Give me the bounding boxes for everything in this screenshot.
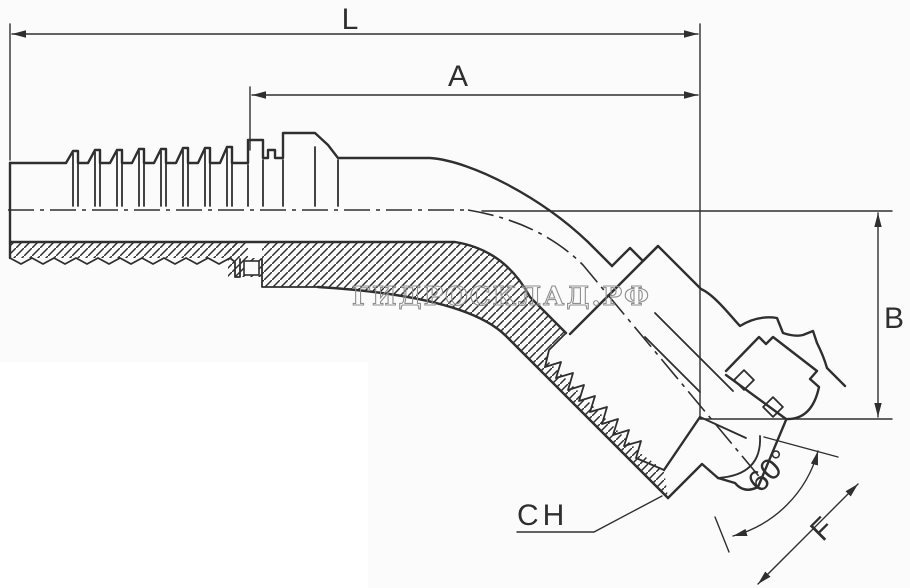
dim-label-B: B xyxy=(884,302,904,335)
fitting-technical-drawing: L A B 60° F CH ГИДРОСКЛАД.РФ xyxy=(0,0,910,588)
dim-line-F xyxy=(758,484,858,584)
dim-label-CH: CH xyxy=(517,499,568,532)
white-panel xyxy=(0,362,368,588)
dim-label-L: L xyxy=(342,3,359,36)
drawing-stage: L A B 60° F CH ГИДРОСКЛАД.РФ xyxy=(0,0,910,588)
dim-label-F: F xyxy=(804,511,840,547)
nut-end-face xyxy=(726,337,819,419)
watermark-text: ГИДРОСКЛАД.РФ xyxy=(352,282,651,312)
cone-seat-line xyxy=(664,417,700,470)
dim-label-A: A xyxy=(448,60,468,93)
internal-thread xyxy=(545,333,664,470)
